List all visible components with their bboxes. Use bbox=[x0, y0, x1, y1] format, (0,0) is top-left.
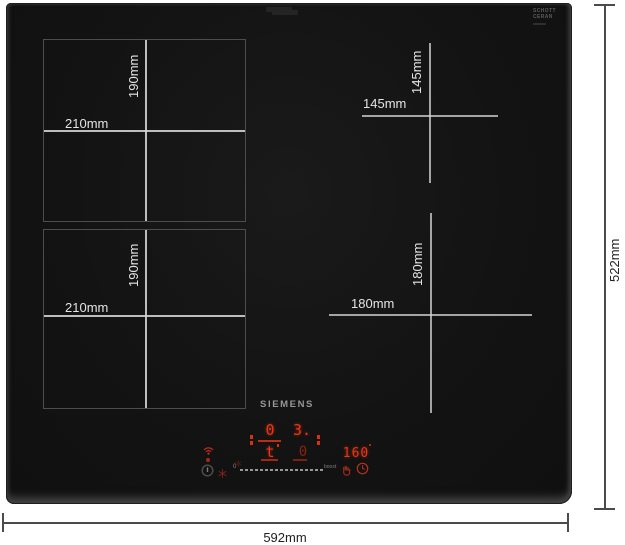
display-zone-right-bottom: 0 bbox=[292, 444, 314, 460]
zone-top-right-hline bbox=[362, 115, 498, 117]
zone-top-right-height-label: 145mm bbox=[409, 42, 424, 102]
zone-bottom-left-width-label: 210mm bbox=[65, 300, 108, 315]
height-dimension-cap-bottom bbox=[594, 508, 615, 510]
overall-width-label: 592mm bbox=[245, 530, 325, 545]
schott-ceran-logo-line2: CERAN bbox=[533, 15, 569, 21]
zone-select-indicator-right bbox=[317, 435, 320, 447]
zone-bottom-right-height-label: 180mm bbox=[410, 234, 425, 294]
zone-bottom-left-vline bbox=[145, 230, 147, 408]
height-dimension-cap-top bbox=[594, 4, 615, 6]
zone-top-left-width-label: 210mm bbox=[65, 116, 108, 131]
display-zone-right-top: 3. bbox=[291, 421, 313, 439]
dimension-diagram: SCHOTT CERAN 190mm 210mm 190mm 210mm 145… bbox=[0, 0, 625, 545]
width-dimension-line bbox=[2, 522, 568, 524]
schott-ceran-sub-marking bbox=[533, 23, 546, 25]
degree-mark bbox=[369, 444, 371, 446]
overall-height-label: 522mm bbox=[607, 228, 622, 292]
display-underline-left bbox=[261, 459, 278, 461]
width-dimension-cap-right bbox=[567, 513, 569, 532]
zone-bottom-left-hline bbox=[44, 315, 245, 317]
slider-boost-label: boost bbox=[324, 464, 336, 470]
display-underline-right bbox=[293, 459, 307, 461]
zone-bottom-right-width-label: 180mm bbox=[351, 296, 394, 311]
pause-hand-icon bbox=[341, 463, 352, 481]
display-tick-mark bbox=[277, 444, 279, 447]
display-separator-line bbox=[258, 440, 281, 442]
zone-top-right-vline bbox=[429, 43, 431, 183]
schott-ceran-logo: SCHOTT CERAN bbox=[533, 9, 569, 25]
zone-bottom-right-vline bbox=[430, 213, 432, 413]
timer-clock-icon bbox=[356, 462, 369, 480]
siemens-logo: SIEMENS bbox=[246, 399, 328, 410]
display-zone-left-top: 0 bbox=[259, 421, 281, 439]
zone-top-left-height-label: 190mm bbox=[126, 45, 141, 107]
power-slider bbox=[240, 469, 323, 471]
zone-select-indicator-left bbox=[250, 435, 253, 447]
zone-bottom-right-hline bbox=[329, 314, 532, 316]
zone-bottom-left-height-label: 190mm bbox=[126, 234, 141, 296]
freeze-icon bbox=[218, 465, 227, 483]
display-temperature: 160 bbox=[341, 446, 371, 461]
power-icon bbox=[201, 464, 214, 482]
height-dimension-line bbox=[604, 5, 606, 509]
spark-icon bbox=[235, 454, 242, 472]
status-dot bbox=[206, 458, 210, 462]
model-marking bbox=[266, 7, 292, 12]
width-dimension-cap-left bbox=[2, 513, 4, 532]
zone-top-right-width-label: 145mm bbox=[363, 96, 406, 111]
